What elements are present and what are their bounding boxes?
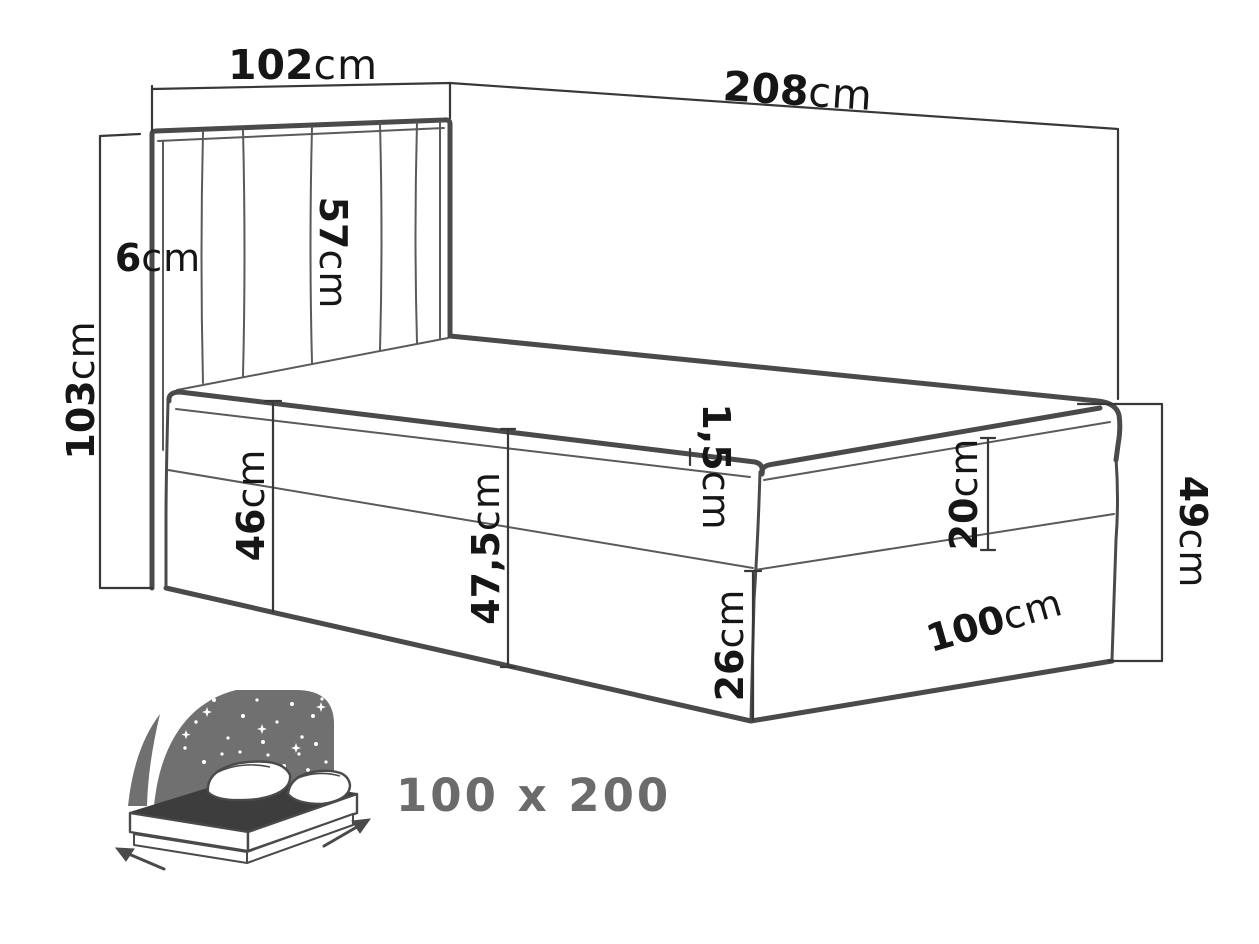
dim-line-bed-length xyxy=(450,83,1118,399)
bed-drawing: 102cm 208cm 103cm 6cm 57cm 46cm 47,5cm 1… xyxy=(59,41,1215,721)
dim-line-headboard-height xyxy=(100,134,152,588)
dim-label-bed-length: 208cm xyxy=(721,62,874,120)
dim-label-headboard-panel-height: 57cm xyxy=(311,197,355,310)
mattress-back-top-edge xyxy=(450,336,1120,460)
dim-label-headboard-depth: 6cm xyxy=(115,236,201,280)
headboard xyxy=(152,120,450,588)
mattress-foot-top-edge xyxy=(762,408,1100,470)
size-label: 100 x 200 xyxy=(396,769,671,822)
bed-bottom-foot-edge xyxy=(751,661,1112,721)
dim-label-topper-thickness: 1,5cm xyxy=(694,403,738,530)
dim-label-headboard-height: 103cm xyxy=(59,320,103,459)
dim-label-foot-base-height: 26cm xyxy=(708,589,752,702)
dim-label-headboard-width: 102cm xyxy=(228,41,378,89)
dim-label-side-height-center: 47,5cm xyxy=(464,471,508,625)
diagram-canvas: 102cm 208cm 103cm 6cm 57cm 46cm 47,5cm 1… xyxy=(0,0,1259,944)
dim-label-foot-height-total: 49cm xyxy=(1171,476,1215,589)
dim-label-base-height-head: 46cm xyxy=(229,449,273,562)
dim-label-mattress-height: 20cm xyxy=(942,438,986,551)
topper-seam-foot xyxy=(764,422,1110,480)
icon-headboard-sliver xyxy=(128,714,160,806)
bed-size-icon xyxy=(116,690,370,869)
dim-label-bed-width-foot: 100cm xyxy=(921,580,1067,661)
bed-front-left-edge xyxy=(166,402,168,586)
mattress-base-seam-foot xyxy=(755,514,1114,570)
headboard-outline xyxy=(152,120,450,588)
bed-dimension-diagram: 102cm 208cm 103cm 6cm 57cm 46cm 47,5cm 1… xyxy=(0,0,1259,944)
bed-right-corner-edge xyxy=(1112,458,1118,660)
